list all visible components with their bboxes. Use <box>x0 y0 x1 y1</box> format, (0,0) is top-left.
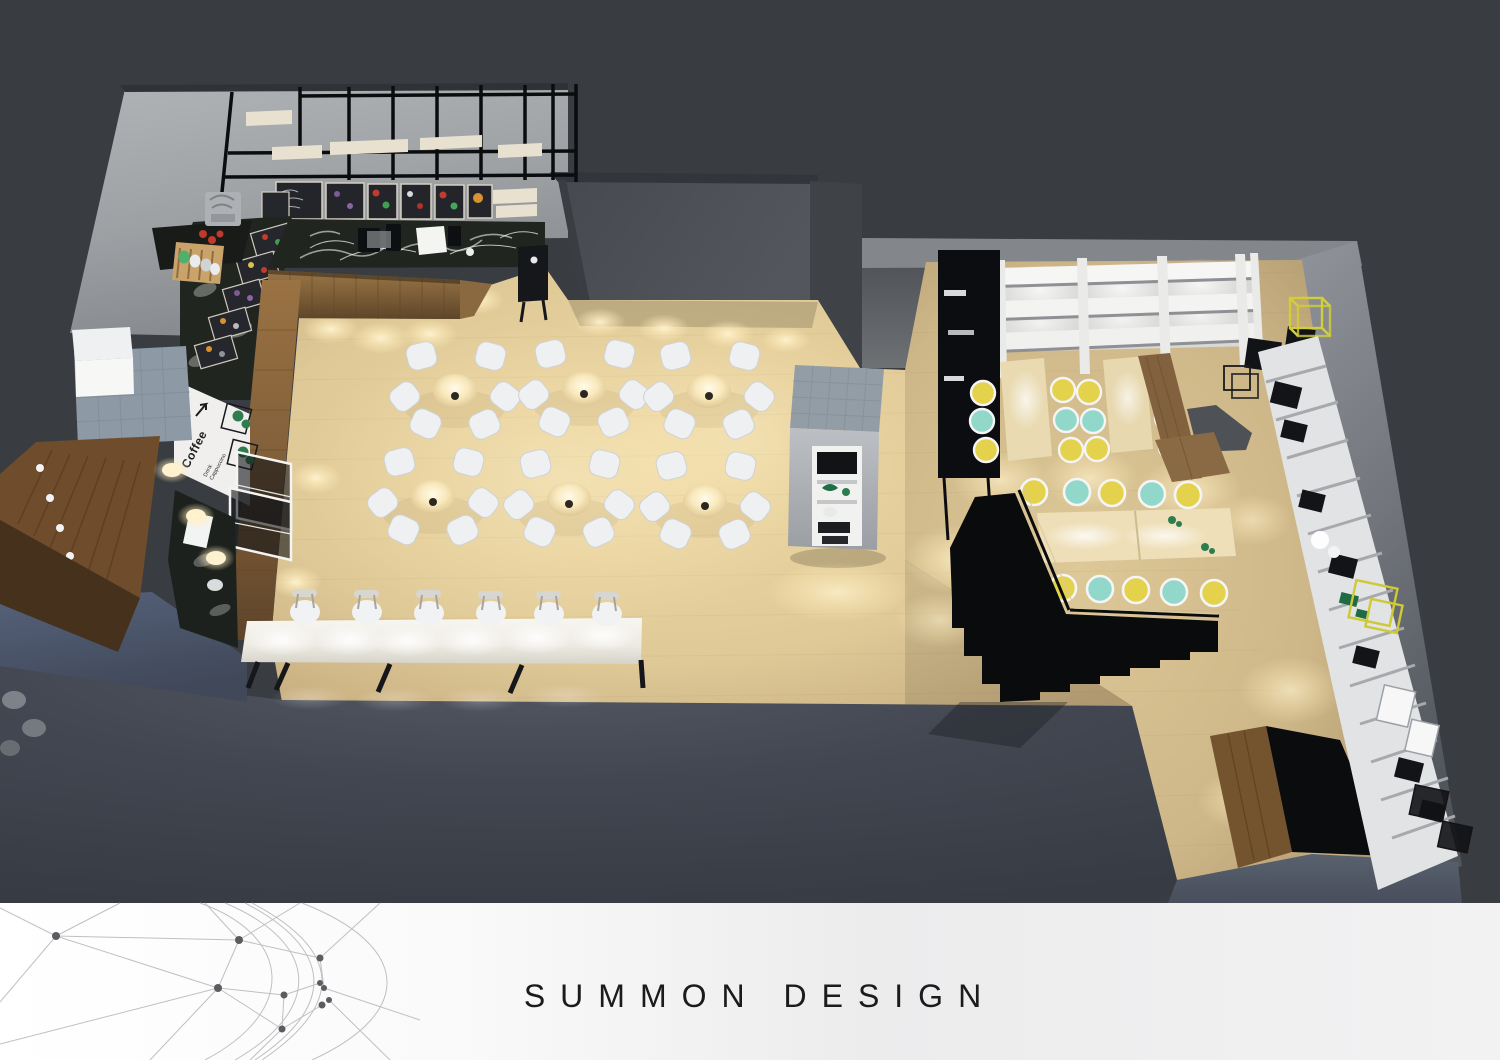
svg-text:SUMMON DESIGN: SUMMON DESIGN <box>524 978 996 1014</box>
